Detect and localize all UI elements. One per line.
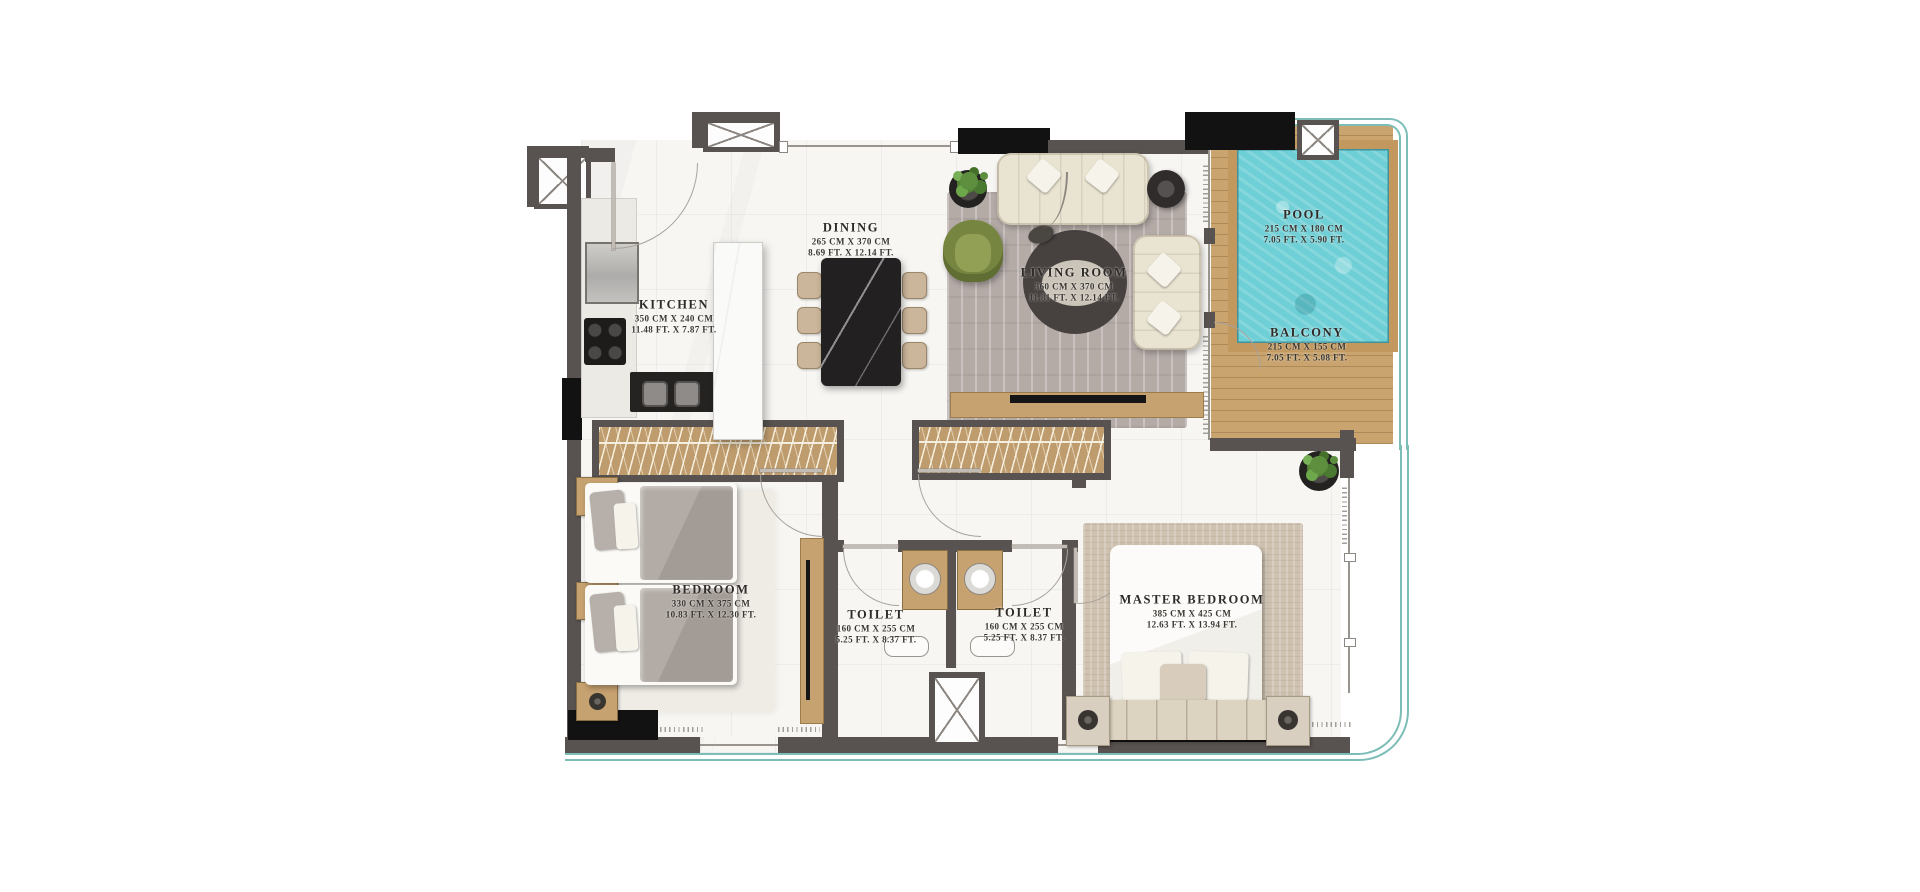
room-label-dining: DINING265 CM X 370 CM8.69 FT. X 12.14 FT…	[808, 221, 894, 258]
bedroom-door-leaf	[760, 469, 822, 472]
sofa-main	[997, 153, 1149, 225]
wall-left-black-segment	[562, 378, 582, 440]
vanity-toilet1	[902, 550, 948, 610]
master-door-leaf	[1074, 548, 1077, 603]
room-label-kitchen: KITCHEN350 CM X 240 CM11.48 FT. X 7.87 F…	[631, 298, 716, 335]
wall-living-top-black	[958, 128, 1050, 154]
dining-chair	[797, 307, 822, 334]
shaft-toilets	[929, 672, 985, 748]
shaft-window-pool-top	[1297, 120, 1339, 160]
fridge	[585, 242, 639, 304]
curtain-mark-bottom-1	[660, 727, 705, 732]
curtain-mark-bottom-2	[778, 727, 820, 732]
room-label-balcony: BALCONY215 CM X 155 CM7.05 FT. X 5.08 FT…	[1267, 326, 1348, 363]
plant-master	[1310, 456, 1328, 474]
room-label-toilet-2: TOILET160 CM X 255 CM5.25 FT. X 8.37 FT.	[984, 606, 1065, 643]
tv-unit-bedroom	[800, 538, 824, 724]
curtain-mark-living-right-1	[1203, 162, 1208, 222]
window-top-center	[782, 145, 958, 147]
glass-facade-inner-top	[1216, 124, 1401, 450]
dining-chair	[797, 342, 822, 369]
vanity-toilet2	[957, 550, 1003, 610]
master-pillow-accent	[1160, 664, 1206, 702]
window-bottom-1	[700, 744, 778, 746]
nightstand-3	[576, 682, 618, 721]
window-tick-master-2	[1344, 638, 1356, 647]
master-nightstand-left	[1066, 696, 1110, 746]
wall-living-top	[1048, 140, 1208, 154]
room-label-master-bedroom: MASTER BEDROOM385 CM X 425 CM12.63 FT. X…	[1120, 593, 1265, 630]
wall-kitchen-top	[585, 148, 615, 162]
kitchen-island	[713, 242, 763, 440]
window-master-right	[1348, 478, 1350, 693]
curtain-mark-living-right-2	[1203, 334, 1208, 434]
dining-chair	[902, 307, 927, 334]
master-headboard	[1096, 700, 1276, 740]
sofa-side	[1133, 235, 1201, 350]
toilet1-door-leaf	[843, 545, 898, 548]
window-jamb-1	[779, 141, 788, 153]
wall-left	[567, 146, 581, 753]
dining-chair	[902, 272, 927, 299]
wall-balcony-bottom	[1210, 438, 1356, 451]
dining-chair	[902, 342, 927, 369]
balcony-glass-wall	[1208, 150, 1210, 440]
room-label-living: LIVING ROOM360 CM X 370 CM11.81 FT. X 12…	[1021, 266, 1128, 303]
side-table	[1147, 170, 1185, 208]
toilet2-door-leaf	[1012, 545, 1067, 548]
tv-bedroom	[806, 560, 810, 700]
wall-master-right-stub	[1340, 430, 1354, 478]
master-nightstand-right	[1266, 696, 1310, 746]
dining-chair	[797, 272, 822, 299]
hall-door-leaf	[918, 469, 980, 472]
room-label-bedroom: BEDROOM330 CM X 375 CM10.83 FT. X 12.30 …	[666, 583, 757, 620]
curtain-mark-bottom-3	[1303, 722, 1353, 727]
accent-armchair	[943, 220, 1003, 282]
wall-bedroom-right	[822, 462, 838, 740]
window-tick-master-1	[1344, 553, 1356, 562]
wall-pool-top-black	[1185, 112, 1295, 150]
shaft-window-dining-top	[703, 118, 779, 152]
floor-plan: KITCHEN350 CM X 240 CM11.48 FT. X 7.87 F…	[0, 0, 1920, 892]
balcony-jamb-top	[1204, 228, 1215, 244]
dining-table	[821, 258, 901, 386]
kitchen-sink	[630, 372, 714, 412]
stove	[584, 318, 626, 365]
curtain-mark-master-right	[1342, 486, 1347, 544]
plant-living	[960, 172, 978, 190]
room-label-pool: POOL215 CM X 180 CM7.05 FT. X 5.90 FT.	[1264, 208, 1345, 245]
room-label-toilet-1: TOILET160 CM X 255 CM5.25 FT. X 8.37 FT.	[836, 608, 917, 645]
single-bed-1	[585, 483, 737, 583]
tv-living	[1010, 395, 1146, 403]
